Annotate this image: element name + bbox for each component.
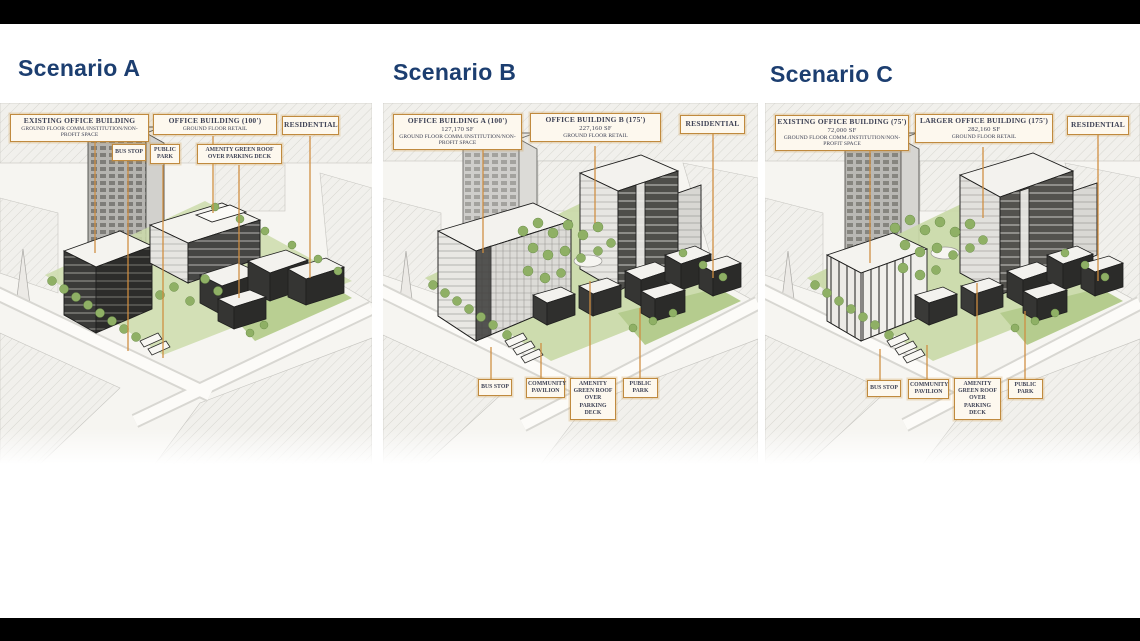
label-title: LARGER OFFICE BUILDING (175')	[917, 117, 1051, 126]
label-c-public-park: PUBLIC PARK	[1008, 379, 1043, 399]
label-b-amenity-green-roof: AMENITY GREEN ROOF OVER PARKING DECK	[570, 378, 616, 420]
scenario-c-illustration	[765, 103, 1140, 464]
label-a-residential: RESIDENTIAL	[282, 116, 339, 135]
label-title: EXISTING OFFICE BUILDING (75')	[777, 118, 907, 127]
label-b-office-building-a: OFFICE BUILDING A (100') 127,170 SF GROU…	[393, 114, 522, 150]
label-title: EXISTING OFFICE BUILDING	[12, 117, 147, 126]
label-title: OFFICE BUILDING A (100')	[395, 117, 520, 126]
label-subtitle: GROUND FLOOR COMM./INSTITUTION/NON-PROFI…	[777, 135, 907, 148]
slide: Scenario A	[0, 0, 1140, 641]
label-a-bus-stop: BUS STOP	[112, 144, 146, 161]
label-title: RESIDENTIAL	[1069, 121, 1127, 130]
label-subtitle: GROUND FLOOR RETAIL	[917, 134, 1051, 141]
label-title: RESIDENTIAL	[284, 121, 337, 130]
label-c-bus-stop: BUS STOP	[867, 380, 901, 397]
label-square-footage: 127,170 SF	[395, 126, 520, 134]
scenario-a-title: Scenario A	[18, 55, 140, 82]
label-subtitle: GROUND FLOOR RETAIL	[155, 126, 275, 133]
label-square-footage: 72,000 SF	[777, 127, 907, 135]
panel-scenario-b: Scenario B	[383, 24, 758, 618]
letterbox-bottom	[0, 618, 1140, 641]
label-square-footage: 227,160 SF	[532, 125, 659, 133]
label-c-community-pavilion: COMMUNITY PAVILION	[908, 379, 949, 399]
label-title: OFFICE BUILDING (100')	[155, 117, 275, 126]
label-b-community-pavilion: COMMUNITY PAVILION	[526, 378, 565, 398]
label-title: RESIDENTIAL	[682, 120, 743, 129]
label-a-existing-office-building: EXISTING OFFICE BUILDING GROUND FLOOR CO…	[10, 114, 149, 142]
label-b-office-building-b: OFFICE BUILDING B (175') 227,160 SF GROU…	[530, 113, 661, 142]
label-a-public-park: PUBLIC PARK	[150, 144, 180, 164]
label-b-bus-stop: BUS STOP	[478, 379, 512, 396]
label-c-larger-office-building: LARGER OFFICE BUILDING (175') 282,160 SF…	[915, 114, 1053, 143]
label-a-amenity-green-roof: AMENITY GREEN ROOF OVER PARKING DECK	[197, 144, 282, 164]
label-title: OFFICE BUILDING B (175')	[532, 116, 659, 125]
panel-scenario-c: Scenario C	[765, 24, 1140, 618]
label-b-residential: RESIDENTIAL	[680, 115, 745, 134]
scenario-c-title: Scenario C	[770, 61, 893, 88]
scenario-a-rendering: EXISTING OFFICE BUILDING GROUND FLOOR CO…	[0, 103, 372, 464]
letterbox-top	[0, 0, 1140, 24]
label-subtitle: GROUND FLOOR COMM./INSTITUTION/NON-PROFI…	[395, 134, 520, 147]
label-b-public-park: PUBLIC PARK	[623, 378, 658, 398]
scenario-b-rendering: OFFICE BUILDING A (100') 127,170 SF GROU…	[383, 103, 758, 464]
label-subtitle: GROUND FLOOR RETAIL	[532, 133, 659, 140]
label-c-existing-office-building: EXISTING OFFICE BUILDING (75') 72,000 SF…	[775, 115, 909, 151]
scenario-a-illustration	[0, 103, 372, 464]
label-c-amenity-green-roof: AMENITY GREEN ROOF OVER PARKING DECK	[954, 378, 1001, 420]
panel-scenario-a: Scenario A	[0, 24, 372, 618]
label-a-office-building: OFFICE BUILDING (100') GROUND FLOOR RETA…	[153, 114, 277, 135]
scenario-c-rendering: EXISTING OFFICE BUILDING (75') 72,000 SF…	[765, 103, 1140, 464]
label-subtitle: GROUND FLOOR COMM./INSTITUTION/NON-PROFI…	[12, 126, 147, 139]
label-square-footage: 282,160 SF	[917, 126, 1051, 134]
label-c-residential: RESIDENTIAL	[1067, 116, 1129, 135]
scenario-b-title: Scenario B	[393, 59, 516, 86]
